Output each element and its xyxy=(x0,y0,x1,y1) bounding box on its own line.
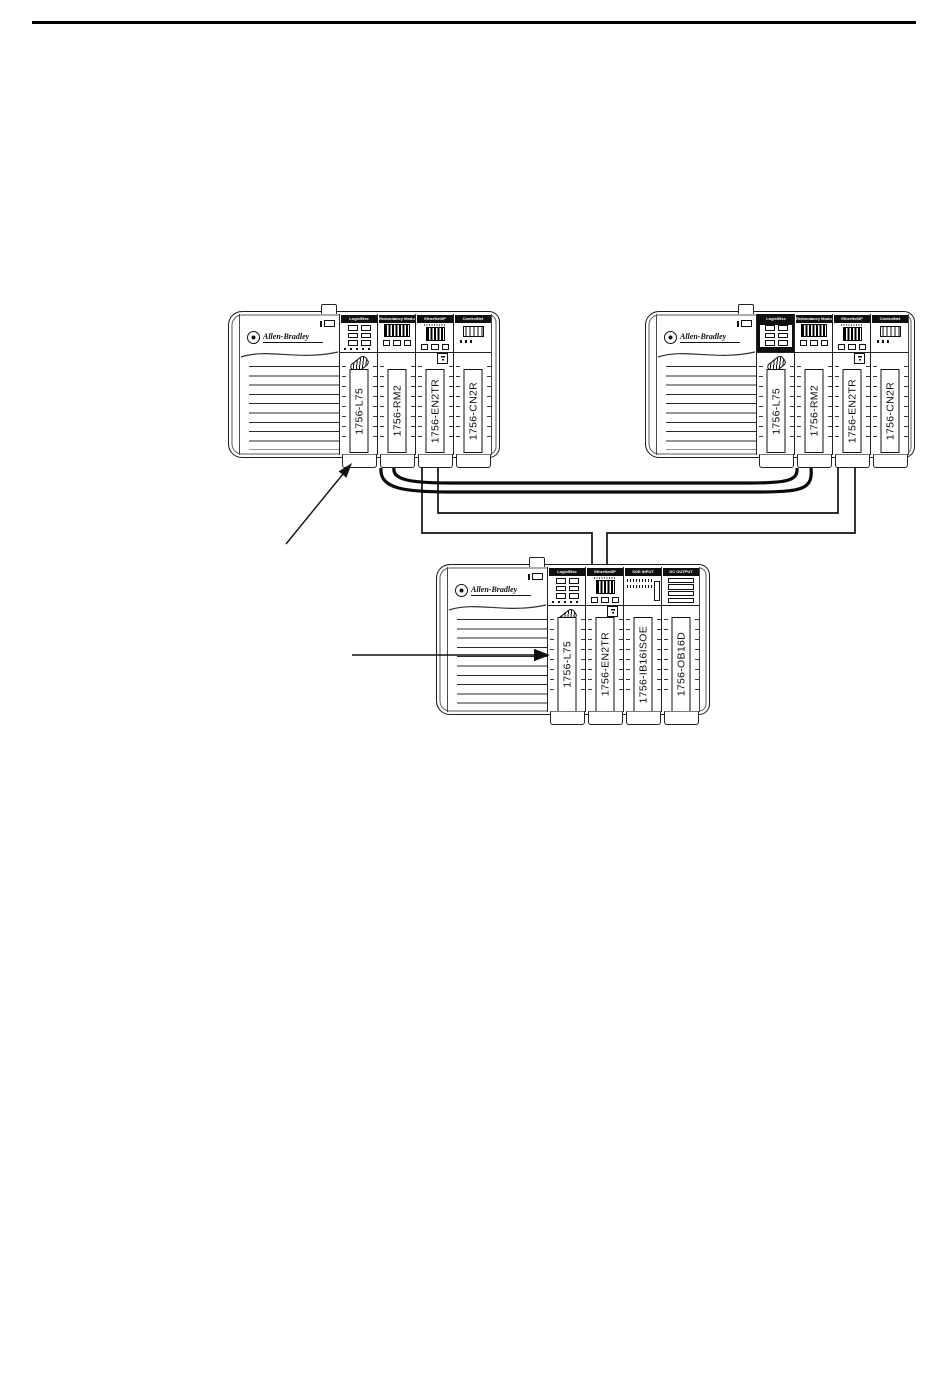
callout-arrow-diagonal xyxy=(286,474,343,544)
module-door xyxy=(664,711,699,725)
module-header: Logix55xx xyxy=(340,314,378,353)
module-header: Logix55xx xyxy=(548,567,586,606)
module-label: 1756-EN2TR xyxy=(596,617,615,712)
module-label: 1756-EN2TR xyxy=(843,369,862,453)
module-header-label: EtherNet/IP xyxy=(834,315,870,323)
status-display xyxy=(834,324,870,348)
module-header: EtherNet/IP xyxy=(833,314,871,353)
ethernet-port-icon xyxy=(854,353,865,364)
module-controlnet: ControlNet 1756-CN2R xyxy=(453,314,492,455)
module-door xyxy=(380,454,415,468)
module-door xyxy=(456,454,491,468)
fiber-cable-1 xyxy=(394,468,797,483)
vent-lines xyxy=(249,366,339,450)
module-label: 1756-CN2R xyxy=(464,369,483,453)
chassis-top-right: Allen-Bradley Logix55xx 1756-L75 Redund xyxy=(645,311,915,458)
module-door xyxy=(797,454,832,468)
module-door xyxy=(626,711,661,725)
vent-lines xyxy=(666,366,756,450)
input-indicators xyxy=(625,579,661,603)
module-door xyxy=(835,454,870,468)
fiber-cable-2 xyxy=(381,468,811,492)
module-header-label: Redundancy Module xyxy=(796,315,832,323)
module-door xyxy=(342,454,377,468)
chassis-endcap-right xyxy=(699,567,700,712)
brand-row: Allen-Bradley xyxy=(664,331,740,344)
module-door xyxy=(588,711,623,725)
module-header-label: ControlNet xyxy=(455,315,491,323)
module-redundancy: Redundancy Module 1756-RM2 xyxy=(377,314,416,455)
brand-label: Allen-Bradley xyxy=(263,332,323,344)
module-header: ControlNet xyxy=(454,314,492,353)
module-header-label: ControlNet xyxy=(872,315,908,323)
module-body: 1756-IB16ISOE xyxy=(624,603,662,712)
module-label: 1756-OB16D xyxy=(672,617,691,712)
module-body: 1756-L75 xyxy=(757,350,795,455)
module-label: 1756-L75 xyxy=(558,617,577,712)
status-display xyxy=(587,577,623,601)
power-indicator-icon xyxy=(528,573,543,580)
power-supply: Allen-Bradley xyxy=(657,314,756,455)
module-label: 1756-RM2 xyxy=(388,369,407,453)
module-controller: Logix55xx 1756-L75 xyxy=(756,314,795,455)
ethernet-link-right-drop xyxy=(607,467,855,565)
brand-label: Allen-Bradley xyxy=(471,585,531,597)
module-body: 1756-L75 xyxy=(340,350,378,455)
module-header: ControlNet xyxy=(871,314,909,353)
module-header: EtherNet/IP xyxy=(416,314,454,353)
address-display xyxy=(455,326,491,350)
module-header-label: Logix55xx xyxy=(758,315,794,323)
module-body: 1756-EN2TR xyxy=(416,350,454,455)
chassis-bottom: Allen-Bradley Logix55xx 1756-L75 EtherN xyxy=(436,564,710,715)
module-header-label: SOE INPUT xyxy=(625,568,661,576)
module-redundancy: Redundancy Module 1756-RM2 xyxy=(794,314,833,455)
status-display xyxy=(379,324,415,348)
module-controller: Logix55xx 1756-L75 xyxy=(547,567,586,712)
module-ethernet: EtherNet/IP 1756-EN2TR xyxy=(585,567,624,712)
module-label: 1756-CN2R xyxy=(881,369,900,453)
module-header: Redundancy Module xyxy=(795,314,833,353)
module-label: 1756-IB16ISOE xyxy=(634,617,653,712)
module-header: Logix55xx xyxy=(757,314,795,353)
module-header-label: EtherNet/IP xyxy=(417,315,453,323)
module-door xyxy=(873,454,908,468)
module-label: 1756-EN2TR xyxy=(426,369,445,453)
module-door xyxy=(418,454,453,468)
module-controlnet: ControlNet 1756-CN2R xyxy=(870,314,909,455)
chassis-top-left: Allen-Bradley Logix55xx 1756-L75 Redund xyxy=(228,311,500,458)
module-body: 1756-OB16D xyxy=(662,603,700,712)
module-dc-output: DC OUTPUT 1756-OB16D xyxy=(661,567,700,712)
ethernet-port-icon xyxy=(607,606,618,617)
chassis-tab xyxy=(529,557,545,567)
brand-row: Allen-Bradley xyxy=(455,584,531,597)
module-body: 1756-CN2R xyxy=(871,350,909,455)
module-label: 1756-L75 xyxy=(350,369,369,453)
module-controller: Logix55xx 1756-L75 xyxy=(339,314,378,455)
power-supply: Allen-Bradley xyxy=(240,314,339,455)
module-body: 1756-RM2 xyxy=(378,350,416,455)
allen-bradley-logo-icon xyxy=(455,584,468,597)
module-header: SOE INPUT xyxy=(624,567,662,606)
chassis-tab xyxy=(738,304,754,314)
module-ethernet: EtherNet/IP 1756-EN2TR xyxy=(415,314,454,455)
chassis-endcap-right xyxy=(908,314,909,455)
status-display xyxy=(417,324,453,348)
page-top-rule xyxy=(32,21,916,24)
manual-page: Allen-Bradley Logix55xx 1756-L75 Redund xyxy=(0,0,950,1398)
module-header-label: EtherNet/IP xyxy=(587,568,623,576)
module-body: 1756-CN2R xyxy=(454,350,492,455)
module-header-label: Logix55xx xyxy=(341,315,377,323)
power-supply: Allen-Bradley xyxy=(448,567,547,712)
module-ethernet: EtherNet/IP 1756-EN2TR xyxy=(832,314,871,455)
allen-bradley-logo-icon xyxy=(664,331,677,344)
module-header-label: Redundancy Module xyxy=(379,315,415,323)
module-body: 1756-RM2 xyxy=(795,350,833,455)
chassis-endcap-right xyxy=(491,314,492,455)
module-body: 1756-EN2TR xyxy=(833,350,871,455)
vent-lines xyxy=(457,619,547,707)
allen-bradley-logo-icon xyxy=(247,331,260,344)
ethernet-link-left-drop xyxy=(422,467,592,565)
module-header-label: DC OUTPUT xyxy=(663,568,699,576)
power-indicator-icon xyxy=(737,320,752,327)
chassis-tab xyxy=(321,304,337,314)
module-soe-input: SOE INPUT 1756-IB16ISOE xyxy=(623,567,662,712)
power-indicator-icon xyxy=(320,320,335,327)
address-display xyxy=(872,326,908,350)
module-label: 1756-RM2 xyxy=(805,369,824,453)
ethernet-port-icon xyxy=(437,353,448,364)
status-leds xyxy=(341,325,377,349)
status-display xyxy=(796,324,832,348)
status-leds xyxy=(760,325,792,347)
module-door xyxy=(759,454,794,468)
ethernet-link-inner xyxy=(438,467,838,513)
module-header-label: Logix55xx xyxy=(549,568,585,576)
module-door xyxy=(550,711,585,725)
module-header: DC OUTPUT xyxy=(662,567,700,606)
brand-label: Allen-Bradley xyxy=(680,332,740,344)
status-leds xyxy=(549,578,585,602)
module-header: EtherNet/IP xyxy=(586,567,624,606)
module-body: 1756-EN2TR xyxy=(586,603,624,712)
module-header: Redundancy Module xyxy=(378,314,416,353)
brand-row: Allen-Bradley xyxy=(247,331,323,344)
output-indicators xyxy=(663,578,699,602)
module-label: 1756-L75 xyxy=(767,369,786,453)
module-body: 1756-L75 xyxy=(548,603,586,712)
